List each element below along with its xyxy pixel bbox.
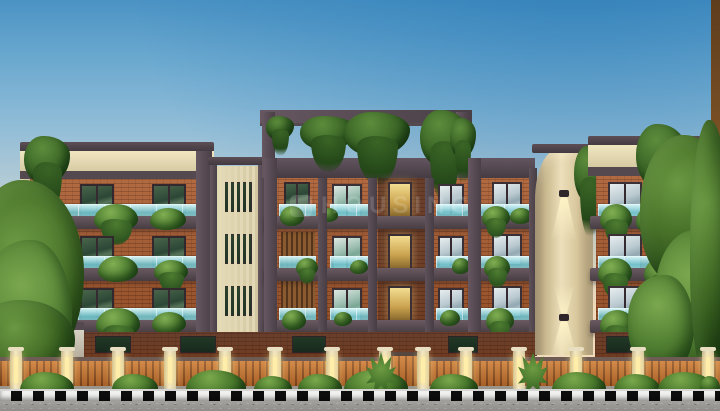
ground-window (292, 336, 326, 353)
balcony-plant (440, 310, 460, 326)
fence-panel (73, 357, 112, 390)
lit-lobby-door (388, 234, 412, 270)
watermark-text: HOUSING (321, 192, 475, 220)
louver-screen (216, 166, 260, 356)
fence-panel (0, 357, 10, 390)
balcony-plant (486, 308, 514, 332)
balcony-plant (296, 258, 318, 276)
balcony-plant (150, 208, 186, 230)
louver-frame (210, 158, 217, 356)
fence-panel (472, 357, 513, 390)
louver-cap (208, 157, 268, 165)
balcony-plant (154, 260, 188, 282)
tree (690, 120, 720, 380)
ground-window (180, 336, 216, 353)
balcony-plant (282, 310, 306, 330)
wall-light (559, 190, 569, 197)
center-roof-slab (264, 158, 535, 178)
lit-lobby-door (388, 286, 412, 322)
structural-column (468, 158, 481, 356)
balcony-plant (94, 204, 138, 232)
balcony-plant (98, 256, 138, 282)
wall-light (559, 314, 569, 321)
balcony-plant (152, 312, 186, 334)
structural-column (264, 158, 277, 356)
watermark: HOUSING (290, 192, 475, 220)
balcony-plant (482, 206, 510, 228)
road (0, 401, 720, 411)
fence-pillar (164, 350, 176, 393)
balcony-plant (598, 258, 632, 286)
watermark-logo-icon (290, 195, 312, 217)
balcony-plant (350, 260, 368, 274)
apartment-elevation-render: HOUSING (0, 0, 720, 411)
balcony-plant (334, 312, 352, 326)
balcony-plant (600, 204, 632, 232)
balcony-plant (484, 256, 510, 278)
fence-pillar (417, 350, 429, 393)
